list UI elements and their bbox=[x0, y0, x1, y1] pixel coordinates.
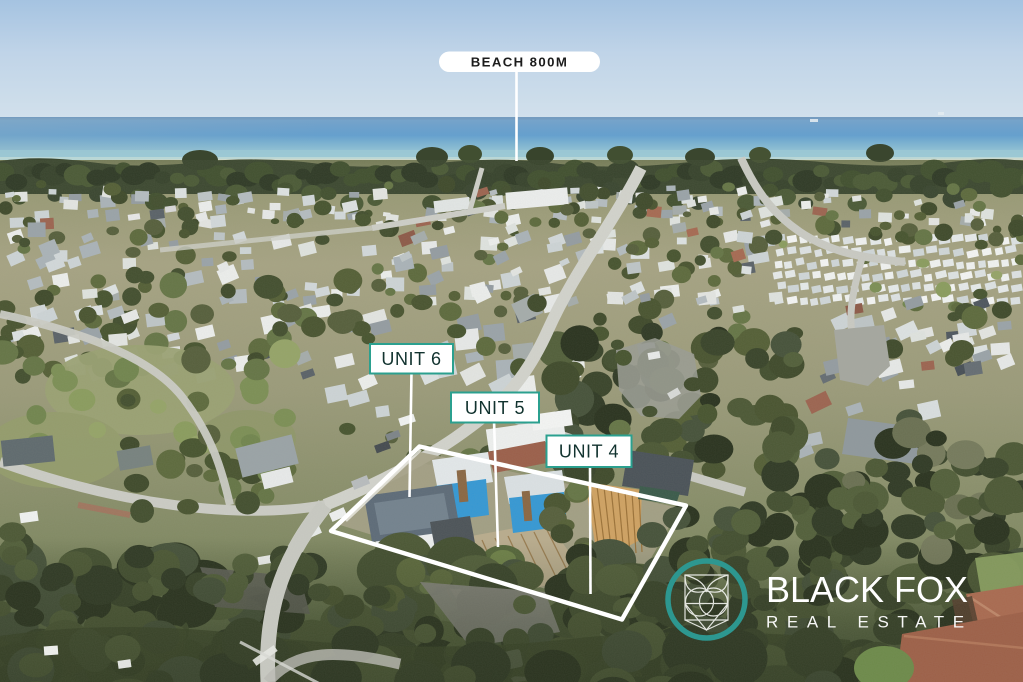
svg-text:UNIT 6: UNIT 6 bbox=[381, 349, 441, 369]
svg-text:UNIT 5: UNIT 5 bbox=[465, 398, 525, 418]
svg-text:BEACH 800M: BEACH 800M bbox=[471, 55, 569, 70]
svg-text:UNIT 4: UNIT 4 bbox=[559, 442, 619, 462]
svg-text:REAL ESTATE: REAL ESTATE bbox=[766, 613, 973, 632]
svg-text:BLACK FOX: BLACK FOX bbox=[766, 569, 968, 610]
